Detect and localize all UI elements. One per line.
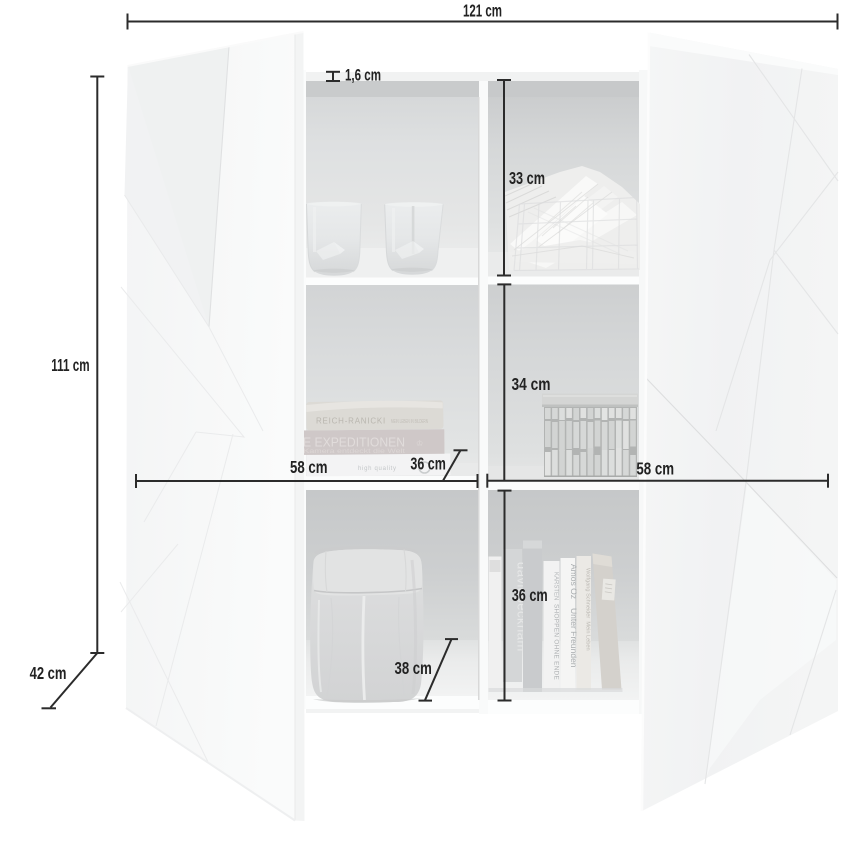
svg-text:111 cm: 111 cm [51,355,89,375]
svg-text:Wolfgang Schneider Mein Leben: Wolfgang Schneider Mein Leben [585,568,591,651]
svg-text:36 cm: 36 cm [410,453,445,473]
svg-text:♔: ♔ [416,439,423,448]
svg-text:high quality: high quality [358,466,397,472]
svg-text:58 cm: 58 cm [290,457,328,477]
svg-text:MEIN LEBEN IN BILDERN: MEIN LEBEN IN BILDERN [391,419,428,425]
svg-text:36 cm: 36 cm [512,585,548,605]
svg-text:r Kamera entdeckt die Welt: r Kamera entdeckt die Welt [298,448,405,455]
svg-text:RЕICH-RANICKI: RЕICH-RANICKI [316,417,386,426]
svg-text:SHOPPEN OHNE ENDE: SHOPPEN OHNE ENDE [553,604,560,680]
svg-text:KARSTEN: KARSTEN [553,572,559,600]
svg-text:1,6 cm: 1,6 cm [345,66,381,84]
svg-text:38 cm: 38 cm [395,658,432,678]
svg-text:34 cm: 34 cm [512,374,551,394]
svg-text:58 cm: 58 cm [636,459,674,479]
svg-text:42 cm: 42 cm [30,663,67,683]
svg-text:121 cm: 121 cm [463,0,502,20]
svg-text:33 cm: 33 cm [509,168,545,188]
